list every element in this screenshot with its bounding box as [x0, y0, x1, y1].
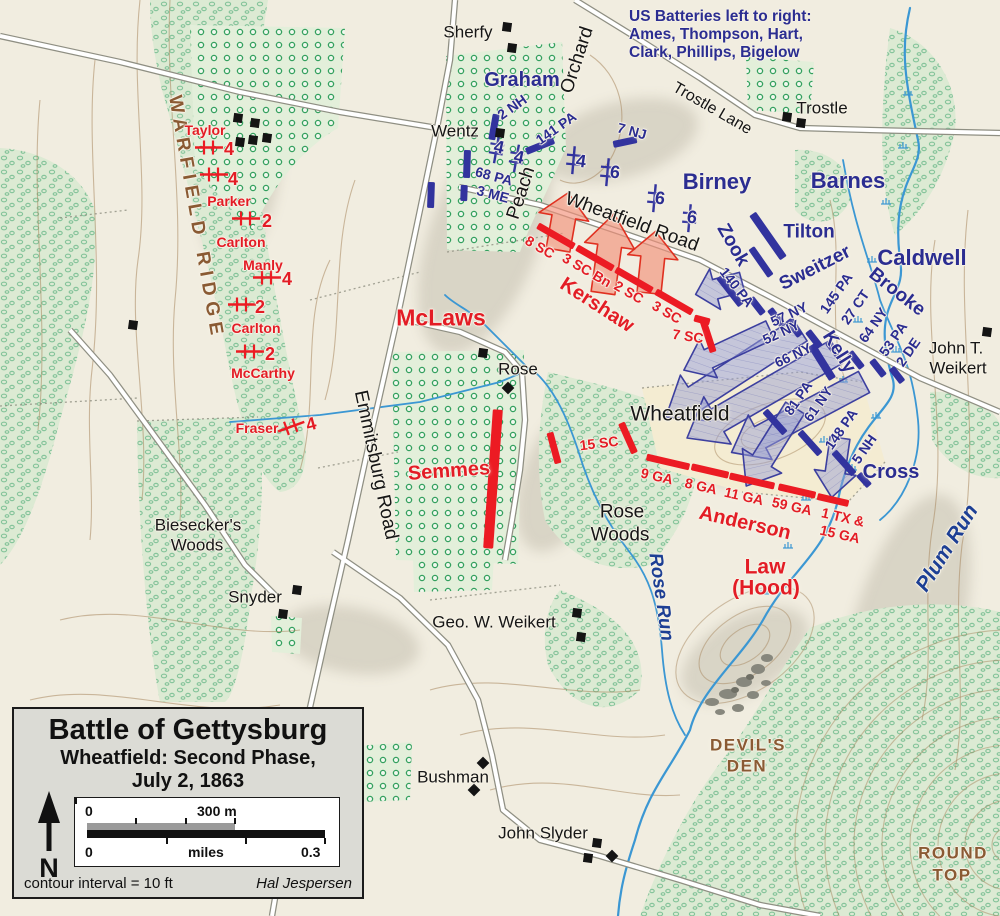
wentz-farm-label: Wentz	[431, 123, 479, 140]
scale-bar-meters	[87, 823, 235, 830]
battery-gun-count: 4	[575, 151, 587, 170]
regiment-11ga-label: 11 GA	[723, 485, 765, 508]
regiment-2sc-label: 2 SC	[612, 278, 646, 306]
regiment-3sc-label: 3 SC	[650, 298, 684, 326]
battery-gun-count: 2	[262, 212, 272, 230]
mclaws-division-label: McLaws	[396, 307, 485, 330]
john-t-weikert-label: John T.	[929, 340, 984, 357]
regiment-9ga-label: 9 GA	[640, 466, 675, 487]
battery-gun-count: 2	[265, 345, 275, 363]
map-subtitle: Wheatfield: Second Phase,	[14, 747, 362, 770]
regiment-66ny-label: 66 NY	[772, 340, 813, 369]
regiment-8sc-label: 8 SC	[523, 233, 557, 261]
regiment-7nj-label: 7 NJ	[616, 120, 648, 141]
parker-battery-label: Parker	[207, 194, 251, 208]
semmes-brigade-label: Semmes	[407, 458, 490, 484]
regiment-15sc-label: 15 SC	[579, 434, 619, 453]
caldwell-division-label: Caldwell	[877, 247, 966, 269]
battery-gun-count: 6	[609, 162, 621, 181]
regiment-148pa-label: 148 PA	[822, 406, 860, 451]
title-box: Battle of Gettysburg Wheatfield: Second …	[12, 707, 364, 899]
zook-brigade-label: Zook	[713, 221, 752, 270]
regiment-8ga-label: 8 GA	[684, 476, 719, 497]
battery-gun-count: 4	[282, 270, 292, 288]
mccarthy-battery-label: McCarthy	[231, 366, 295, 380]
north-arrow-icon	[29, 789, 69, 851]
law-hood-label2: (Hood)	[732, 578, 800, 599]
us-batteries-note-line: Ames, Thompson, Hart,	[629, 26, 812, 44]
battery-gun-count: 2	[255, 298, 265, 316]
kelly-brigade-label: Kelly	[819, 328, 859, 377]
north-arrow: N	[28, 789, 70, 885]
regiment-140pa-label: 140 PA	[717, 265, 756, 310]
rose-farm-label: Rose	[498, 361, 538, 378]
scale-zero-mi: 0	[85, 844, 93, 860]
regiment-7sc-label: 7 SC	[672, 327, 705, 345]
plum-run-label: Plum Run	[912, 501, 982, 595]
geo-weikert-label: Geo. W. Weikert	[432, 614, 555, 631]
wheatfield-label: Wheatfield	[630, 404, 729, 425]
bieseckers-woods-label: Biesecker's	[155, 517, 241, 534]
rose-run-label: Rose Run	[645, 552, 676, 642]
fraser-battery-label: Fraser	[236, 421, 279, 435]
regiment-2nh-label: 2 NH	[495, 92, 529, 122]
battery-gun-count: 4	[512, 147, 526, 167]
battery-gun-count: 6	[686, 207, 698, 226]
john-slyder-label: John Slyder	[498, 825, 588, 842]
taylor-battery-label: Taylor	[185, 123, 226, 137]
tilton-brigade-label: Tilton	[783, 223, 834, 242]
birney-division-label: Birney	[683, 171, 751, 193]
carlton-battery-label: Carlton	[217, 235, 266, 249]
scale-bar: 0 300 m 0 miles 0.3	[74, 797, 340, 867]
bieseckers-woods-label2: Woods	[171, 537, 224, 554]
john-t-weikert-label2: Weikert	[929, 360, 986, 377]
us-batteries-note-line: Clark, Phillips, Bigelow	[629, 44, 812, 62]
bushman-farm-label: Bushman	[417, 769, 489, 786]
peach-orchard-label2: Orchard	[557, 24, 596, 95]
emmitsburg-road-label: Emmitsburg Road	[351, 389, 401, 542]
scale-bar-miles	[87, 830, 325, 838]
regiment-59ga-label: 59 GA	[771, 495, 814, 518]
us-batteries-note-line: US Batteries left to right:	[629, 8, 812, 26]
rose-woods-label2: Woods	[591, 526, 650, 545]
manly-battery-label: Manly	[243, 258, 283, 272]
cross-brigade-label: Cross	[863, 462, 920, 482]
battery-gun-count: 4	[228, 170, 238, 188]
battery-gun-count: 6	[654, 188, 666, 207]
regiment-141pa-label: 141 PA	[533, 109, 578, 147]
battery-gun-count: 4	[492, 137, 506, 157]
scale-miles-label: miles	[188, 844, 224, 860]
contour-interval-note: contour interval = 10 ft	[24, 875, 173, 892]
graham-brigade-label: Graham	[484, 70, 560, 90]
carlton-battery-label2: Carlton	[232, 321, 281, 335]
round-top-label2: TOP	[932, 867, 971, 884]
map-title: Battle of Gettysburg	[14, 714, 362, 747]
battery-gun-count: 4	[224, 140, 234, 158]
round-top-label: ROUND	[918, 845, 988, 862]
us-batteries-note: US Batteries left to right: Ames, Thomps…	[629, 8, 812, 62]
battery-gun-count: 4	[304, 414, 318, 434]
scale-300m: 300 m	[197, 803, 237, 819]
cartographer-credit: Hal Jespersen	[256, 875, 352, 892]
wheatfield-road-label: Wheatfield Road	[563, 189, 701, 255]
devils-den-label2: DEN	[727, 758, 767, 775]
barnes-division-label: Barnes	[811, 170, 886, 192]
trostle-lane-label: Trostle Lane	[670, 80, 755, 138]
devils-den-label: DEVIL'S	[710, 737, 786, 754]
rose-woods-label: Rose	[600, 503, 644, 522]
scale-03mi: 0.3	[301, 844, 320, 860]
battle-map: SherfyWentzTrostleRoseBiesecker'sWoodsSn…	[0, 0, 1000, 916]
snyder-farm-label: Snyder	[228, 589, 282, 606]
sherfy-farm-label: Sherfy	[443, 24, 492, 41]
law-hood-label: Law	[745, 557, 786, 578]
trostle-farm-label: Trostle	[796, 100, 847, 117]
regiment-52ny-label: 52 NY	[760, 317, 801, 346]
scale-zero-m: 0	[85, 803, 93, 819]
